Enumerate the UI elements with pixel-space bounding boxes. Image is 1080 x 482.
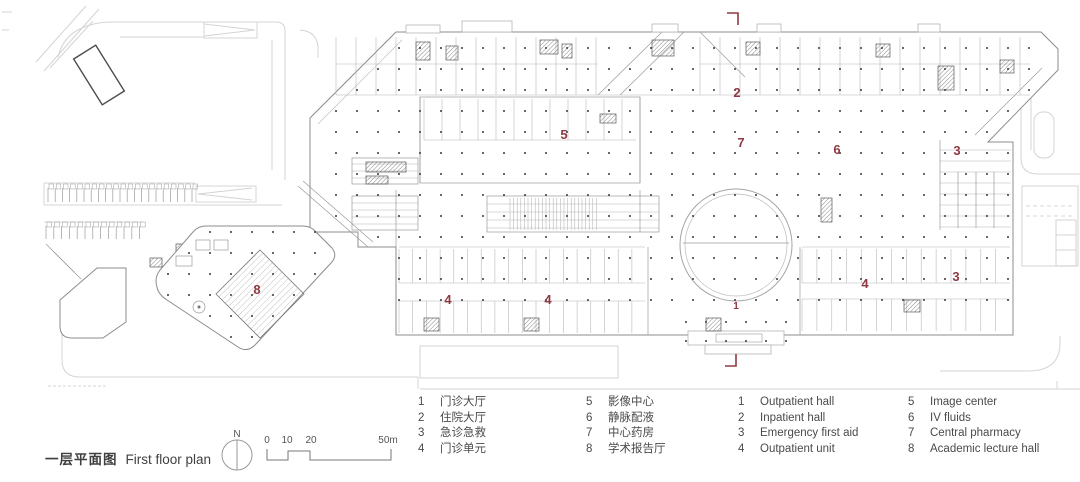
legend-num: 4 (418, 442, 440, 458)
marker-7: 7 (737, 135, 744, 150)
legend-label: 急诊急救 (440, 426, 486, 442)
legend-item: 1Outpatient hall (738, 395, 858, 411)
legend-num: 1 (418, 395, 440, 411)
legend-item: 8Academic lecture hall (908, 442, 1039, 458)
legend-label: Outpatient hall (760, 395, 834, 411)
legend-label: 静脉配液 (608, 411, 654, 427)
legend-item: 6IV fluids (908, 411, 1039, 427)
scale-tick-10: 10 (281, 435, 293, 446)
legend-num: 3 (418, 426, 440, 442)
legend-item: 1门诊大厅 (418, 395, 486, 411)
north-canopies (406, 21, 940, 33)
legend-num: 6 (908, 411, 930, 427)
legend-label: 门诊单元 (440, 442, 486, 458)
sheet-title: 一层平面图First floor plan (45, 448, 211, 468)
floor-plan-sheet: 2 7 5 6 3 3 4 4 4 8 1 N 0 10 20 50m 一层平面… (0, 0, 1080, 482)
south-entrance-canopy (420, 331, 784, 378)
legend-item: 5影像中心 (586, 395, 666, 411)
legend-num: 3 (738, 426, 760, 442)
legend-item: 7Central pharmacy (908, 426, 1039, 442)
east-canopy (1022, 186, 1078, 266)
legend-item: 7中心药房 (586, 426, 666, 442)
legend-en-col2: 5Image center 6IV fluids 7Central pharma… (908, 395, 1039, 457)
legend-item: 3急诊急救 (418, 426, 486, 442)
legend-item: 4门诊单元 (418, 442, 486, 458)
scale-tick-20: 20 (305, 435, 317, 446)
legend-zh-col1: 1门诊大厅 2住院大厅 3急诊急救 4门诊单元 (418, 395, 486, 457)
legend-label: Outpatient unit (760, 442, 835, 458)
legend-label: 学术报告厅 (608, 442, 666, 458)
legend-label: 中心药房 (608, 426, 654, 442)
legend-item: 4Outpatient unit (738, 442, 858, 458)
north-label: N (233, 429, 240, 440)
sheet-title-zh: 一层平面图 (45, 452, 118, 467)
scale-bar: 0 10 20 50m (264, 435, 398, 460)
legend-label: 门诊大厅 (440, 395, 486, 411)
legend-num: 1 (738, 395, 760, 411)
legend-num: 5 (908, 395, 930, 411)
legend-label: Inpatient hall (760, 411, 825, 427)
legend-item: 2Inpatient hall (738, 411, 858, 427)
legend-num: 2 (738, 411, 760, 427)
marker-4-west: 4 (444, 292, 452, 307)
legend-item: 5Image center (908, 395, 1039, 411)
legend-num: 6 (586, 411, 608, 427)
legend-num: 8 (908, 442, 930, 458)
sheet-title-en: First floor plan (126, 452, 212, 467)
gatehouse-building (74, 45, 125, 105)
marker-3-north: 3 (953, 143, 960, 158)
legend-label: Image center (930, 395, 997, 411)
marker-4-mid: 4 (544, 292, 552, 307)
legend-num: 8 (586, 442, 608, 458)
legend-num: 4 (738, 442, 760, 458)
legend-label: IV fluids (930, 411, 971, 427)
north-arrow: N (222, 429, 252, 470)
scale-tick-0: 0 (264, 435, 270, 446)
annex-building (60, 268, 126, 338)
legend-zh-col2: 5影像中心 6静脉配液 7中心药房 8学术报告厅 (586, 395, 666, 457)
marker-6: 6 (833, 142, 840, 157)
scale-tick-50: 50m (378, 435, 397, 446)
legend-en-col1: 1Outpatient hall 2Inpatient hall 3Emerge… (738, 395, 858, 457)
legend-label: 住院大厅 (440, 411, 486, 427)
marker-2: 2 (733, 85, 740, 100)
legend-label: Central pharmacy (930, 426, 1021, 442)
legend-label: Academic lecture hall (930, 442, 1039, 458)
legend-num: 5 (586, 395, 608, 411)
legend-num: 2 (418, 411, 440, 427)
legend-label: Emergency first aid (760, 426, 858, 442)
legend-num: 7 (586, 426, 608, 442)
legend-item: 6静脉配液 (586, 411, 666, 427)
marker-5: 5 (560, 127, 567, 142)
marker-1: 1 (733, 301, 739, 312)
marker-8: 8 (253, 282, 260, 297)
legend-item: 8学术报告厅 (586, 442, 666, 458)
legend-item: 3Emergency first aid (738, 426, 858, 442)
marker-4-east: 4 (861, 276, 869, 291)
legend-num: 7 (908, 426, 930, 442)
legend-label: 影像中心 (608, 395, 654, 411)
legend-item: 2住院大厅 (418, 411, 486, 427)
marker-3-south: 3 (952, 269, 959, 284)
